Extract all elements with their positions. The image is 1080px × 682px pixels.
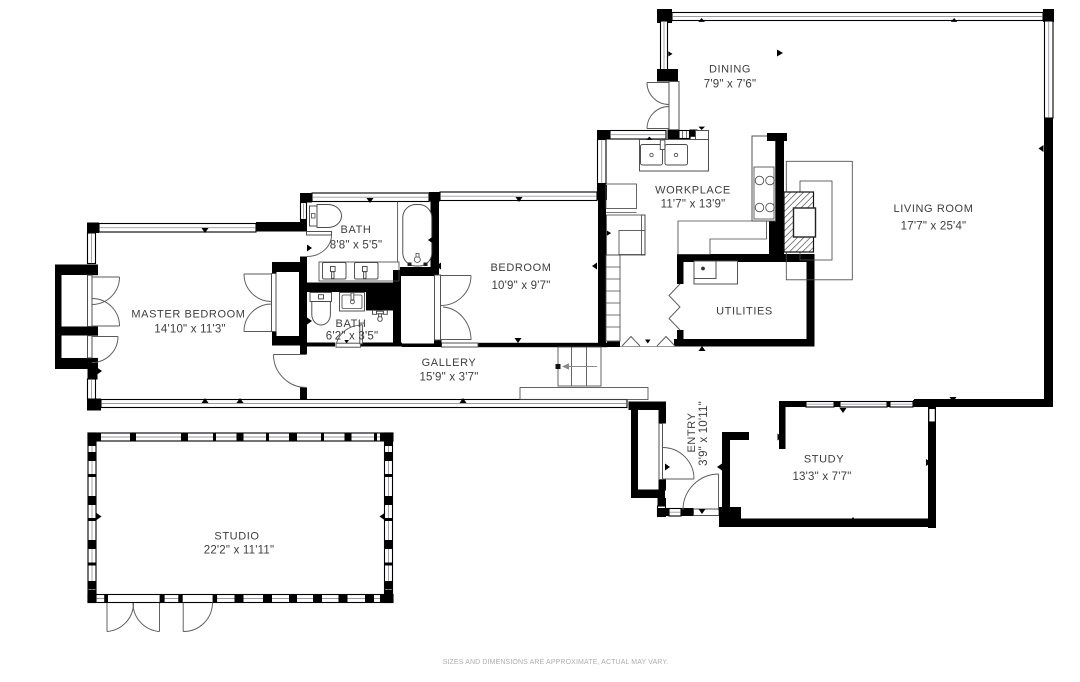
svg-text:11'7" x 13'9": 11'7" x 13'9"	[661, 199, 726, 211]
svg-text:7'9" x 7'6": 7'9" x 7'6"	[704, 79, 756, 91]
svg-text:10'9" x 9'7": 10'9" x 9'7"	[491, 280, 550, 292]
svg-text:STUDIO: STUDIO	[214, 531, 259, 543]
svg-text:8'8" x 5'5": 8'8" x 5'5"	[330, 240, 382, 252]
svg-text:STUDY: STUDY	[804, 454, 844, 466]
svg-text:13'3" x 7'7": 13'3" x 7'7"	[792, 471, 851, 483]
svg-text:DINING: DINING	[709, 64, 751, 76]
svg-text:15'9" x 3'7": 15'9" x 3'7"	[419, 372, 478, 384]
svg-text:22'2" x 11'11": 22'2" x 11'11"	[204, 545, 275, 557]
svg-text:GALLERY: GALLERY	[422, 357, 477, 369]
svg-text:WORKPLACE: WORKPLACE	[655, 185, 731, 197]
svg-text:MASTER BEDROOM: MASTER BEDROOM	[131, 309, 245, 321]
svg-text:17'7" x 25'4": 17'7" x 25'4"	[901, 221, 967, 233]
svg-text:14'10" x 11'3": 14'10" x 11'3"	[154, 324, 225, 336]
svg-text:SIZES AND DIMENSIONS ARE APPRO: SIZES AND DIMENSIONS ARE APPROXIMATE, AC…	[443, 659, 669, 666]
svg-text:BATH: BATH	[341, 224, 372, 236]
svg-text:UTILITIES: UTILITIES	[716, 306, 773, 318]
svg-text:BATH: BATH	[336, 318, 367, 330]
svg-text:ENTRY: ENTRY	[686, 412, 698, 452]
svg-text:LIVING ROOM: LIVING ROOM	[894, 203, 974, 215]
svg-text:BEDROOM: BEDROOM	[490, 262, 551, 274]
svg-text:6'2" x 3'5": 6'2" x 3'5"	[326, 331, 378, 343]
svg-text:3'9" x 10'11": 3'9" x 10'11"	[698, 401, 710, 466]
